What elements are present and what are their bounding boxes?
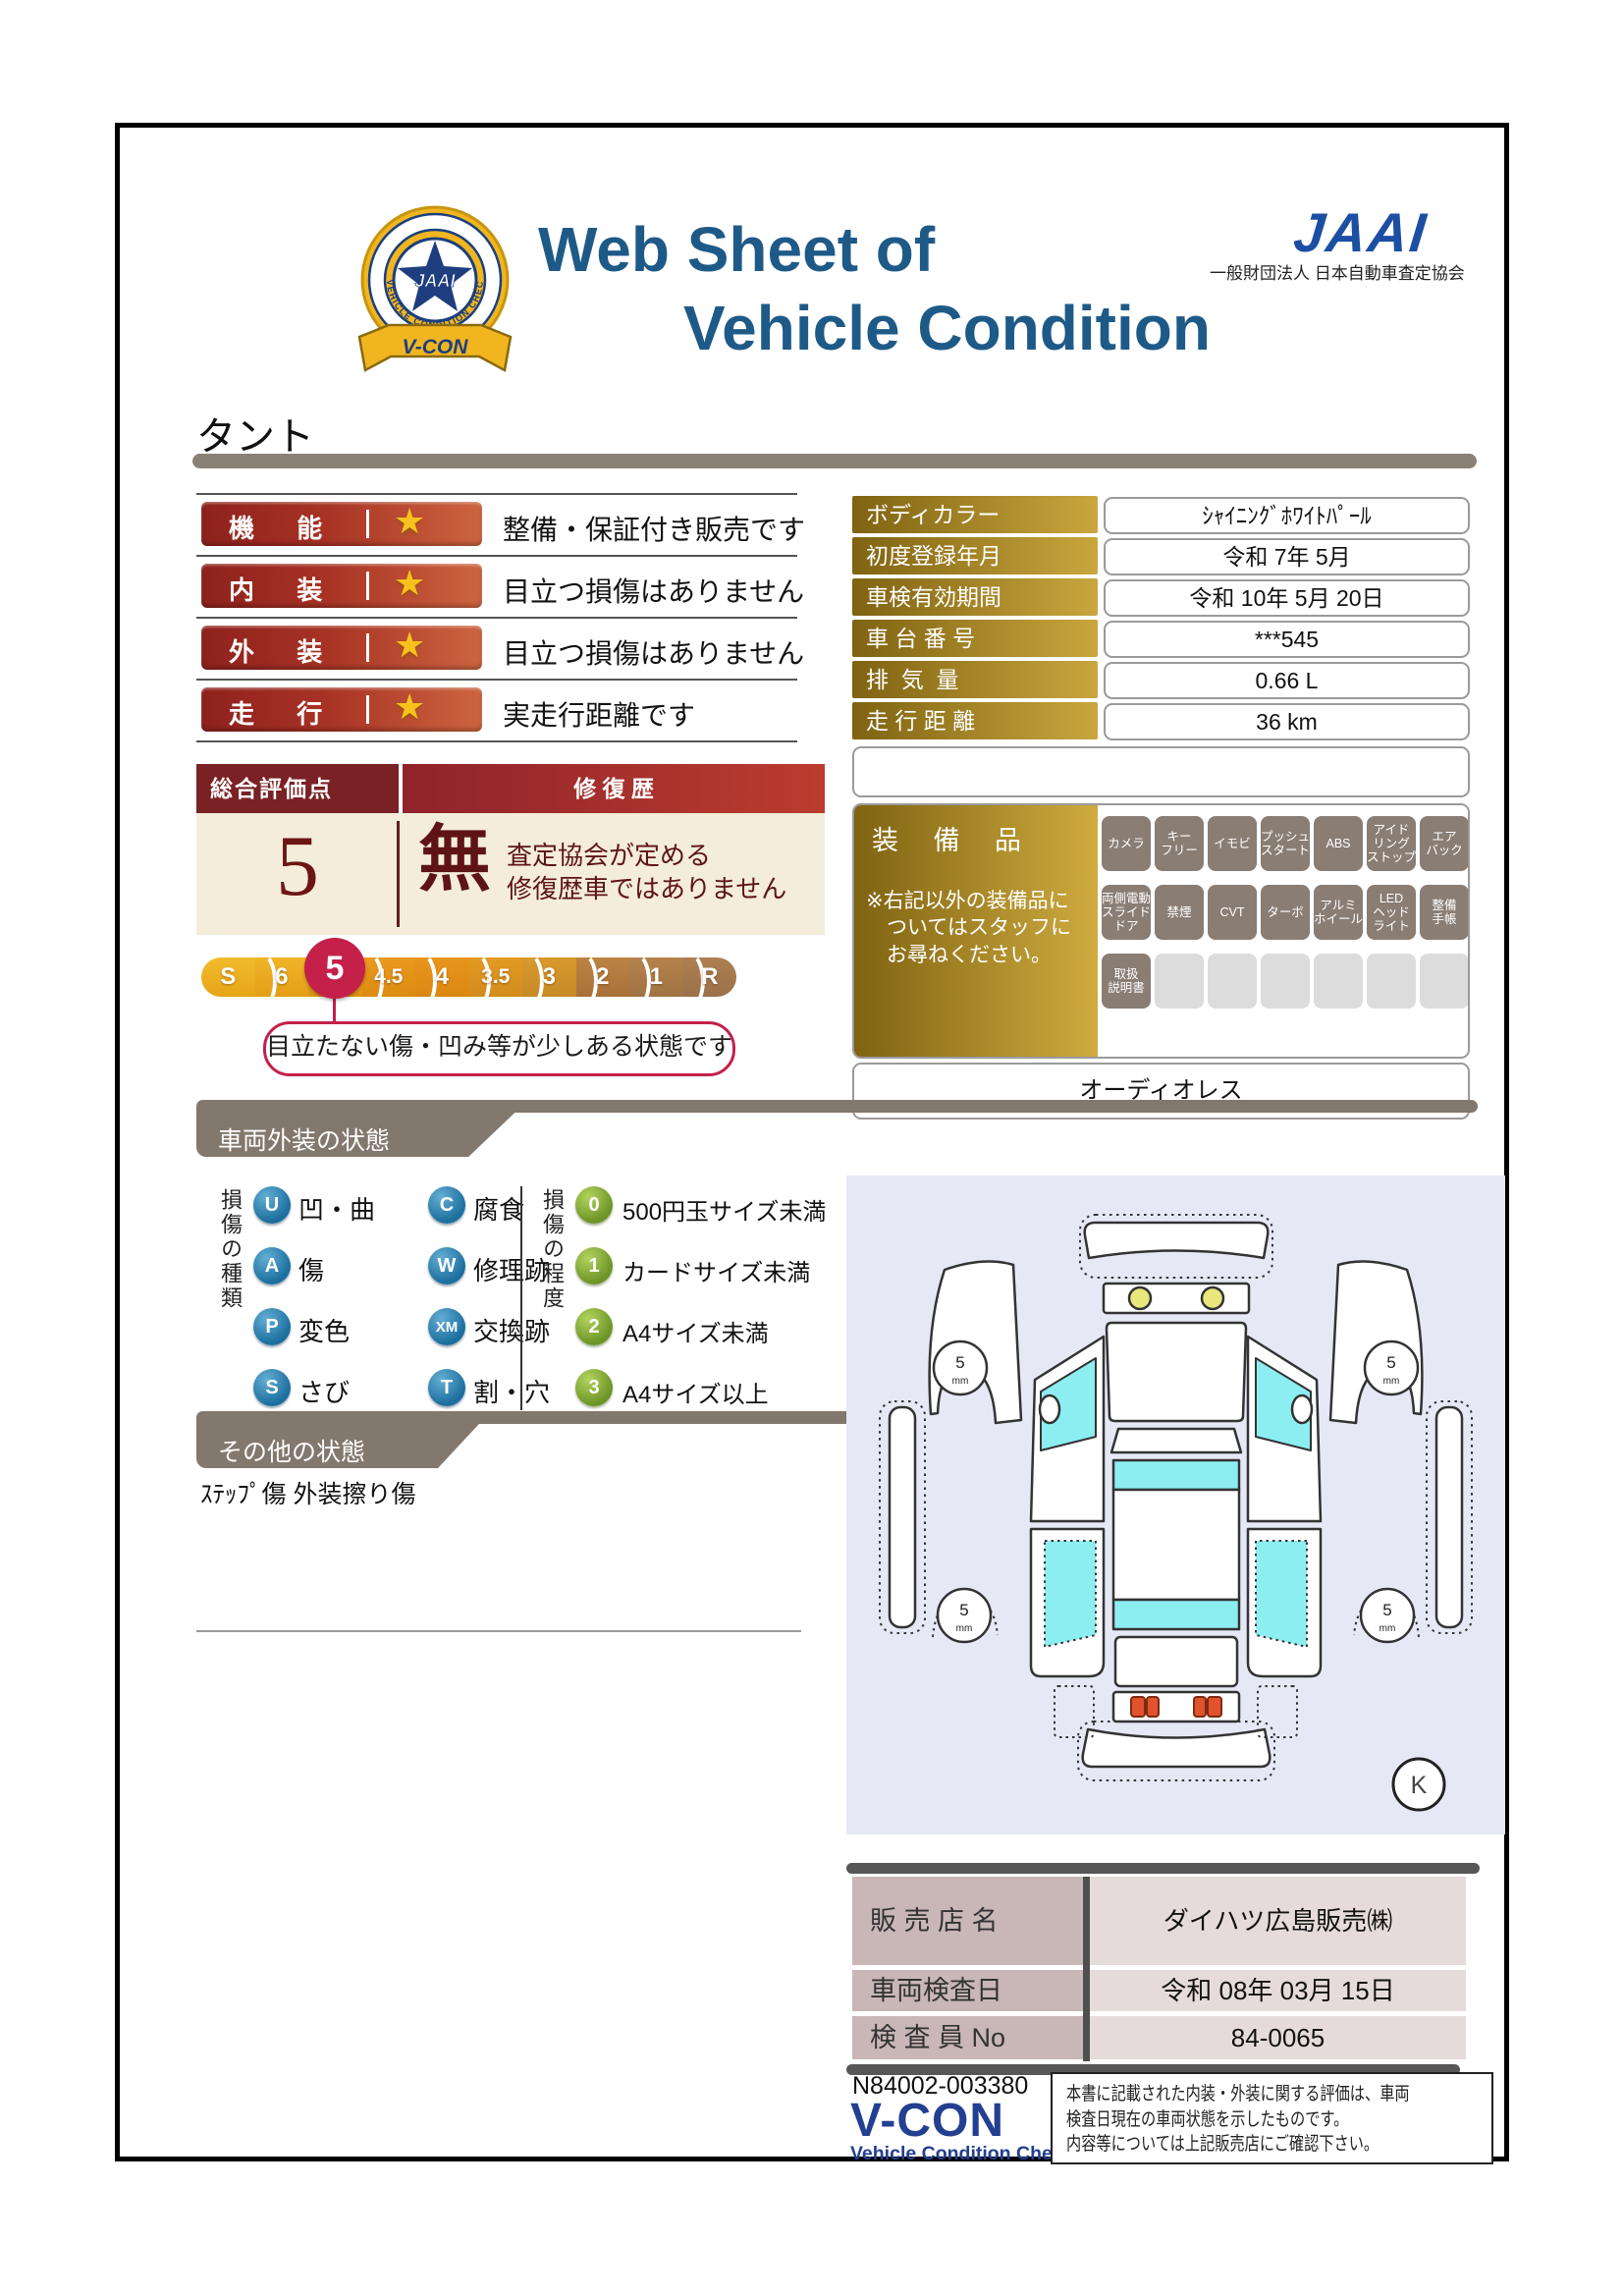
dealer-table-top-bar [846,1863,1480,1874]
damage-type-text: 交換跡 [473,1312,550,1348]
equipment-badge: プッシュ スタート [1261,816,1310,871]
equipment-gold-panel: 装 備 品 ※右記以外の装備品に ついてはスタッフに お尋ねください。 [854,805,1098,1057]
damage-type-text: 傷 [298,1251,324,1287]
left-column-rule [196,1630,801,1632]
front-bumper [1085,1223,1269,1258]
detail-value-chassis-number: ***545 [1104,621,1470,658]
rating-divider [366,633,369,662]
hood [1107,1323,1246,1421]
rating-separator [196,740,797,742]
overall-score-body: 5 無 査定協会が定める 修復歴車ではありません [196,813,825,935]
dealer-value-inspection-date: 令和 08年 03月 15日 [1090,1970,1466,2011]
svg-text:5: 5 [1386,1353,1395,1372]
dealer-value-shop: ダイハツ広島販売㈱ [1090,1877,1466,1965]
rating-divider [366,695,369,724]
car-left-side-parts [880,1261,1104,1737]
headlight-panel [1104,1284,1249,1313]
damage-type-text: さび [298,1373,350,1409]
disclaimer-box: 本書に記載された内装・外装に関する評価は、車両 検査日現在の車両状態を示したもの… [1051,2072,1493,2164]
rating-row-exterior: 外 装 ★ [201,626,482,670]
equipment-badge: キー フリー [1155,816,1204,871]
front-fender [930,1261,1021,1423]
rating-label: 走 行 [229,694,340,731]
equipment-badge: カメラ [1102,816,1151,871]
jaai-logo: JAAI [1291,200,1431,264]
scale-seg-R: R [683,957,737,997]
equipment-title: 装 備 品 [872,819,1035,857]
tire-front-left: 5 mm [934,1341,987,1394]
dealer-label-inspection-date: 車両検査日 [852,1970,1083,2011]
damage-type-icon-W: W [428,1247,465,1285]
detail-label-mileage: 走 行 距 離 [852,702,1098,739]
rating-desc: 実走行距離です [503,694,695,734]
svg-text:K: K [1411,1772,1428,1799]
star-icon: ★ [394,501,425,542]
equipment-badge: エア バック [1420,816,1469,871]
detail-label-chassis-number: 車 台 番 号 [852,620,1098,657]
exterior-section-title: 車両外装の状態 [218,1121,390,1157]
star-icon: ★ [394,563,425,604]
windshield [1111,1429,1241,1452]
legend-divider [520,1186,522,1410]
overall-body-divider [397,821,400,927]
selected-score-pointer [333,998,336,1023]
detail-value-displacement: 0.66 L [1104,662,1470,699]
damage-type-text: 割・穴 [473,1373,550,1409]
equipment-badge-empty [1208,954,1257,1009]
vcon-emblem-icon: VEHICLE CONDITION CHECK SYSTEM JAAI V-CO… [342,199,528,391]
rating-divider [366,572,369,600]
tire-rear-right: 5 mm [1361,1589,1414,1642]
repair-history-header: 修 復 歴 [403,764,825,813]
equipment-badge: 両側電動 スライド ドア [1102,885,1151,940]
damage-type-icon-C: C [428,1186,465,1224]
sheet-title-line2: Vehicle Condition [683,289,1211,367]
damage-degree-label: 損傷の程度 [536,1188,568,1311]
car-diagram-panel: 5 mm 5 mm 5 mm 5 mm K [846,1175,1505,1834]
other-condition-note: ｽﾃｯﾌﾟ傷 外装擦り傷 [200,1475,415,1510]
selected-score-marker: 5 [304,938,365,999]
roof-front-glass [1113,1460,1239,1490]
rating-label: 機 能 [229,509,340,545]
overall-score-header: 総合評価点 [196,764,399,813]
repair-history-header-label: 修 復 歴 [403,764,825,813]
repair-history-mark: 無 [418,821,491,901]
dealer-label-shop: 販 売 店 名 [852,1877,1083,1965]
equipment-note: ※右記以外の装備品に ついてはスタッフに お尋ねください。 [866,888,1071,968]
rating-divider [366,510,369,538]
equipment-badge: ABS [1314,816,1363,871]
svg-text:mm: mm [1380,1623,1396,1634]
overall-score-header-label: 総合評価点 [196,764,399,813]
equipment-badge-empty [1314,954,1363,1009]
damage-type-icon-S: S [253,1369,291,1406]
equipment-badge: ターボ [1261,885,1310,940]
sheet-title: Web Sheet of Vehicle Condition [538,210,1211,367]
equipment-badge: 整備 手帳 [1420,885,1469,940]
roof [1113,1490,1239,1600]
detail-value-first-registration: 令和 7年 5月 [1104,538,1470,575]
damage-type-text: 凹・曲 [298,1190,375,1227]
star-icon: ★ [394,686,425,728]
other-section-title: その他の状態 [218,1433,365,1468]
damage-type-icon-U: U [253,1186,291,1224]
detail-value-mileage: 36 km [1104,703,1470,740]
dealer-label-inspector-no: 検 査 員 No [852,2016,1083,2059]
exterior-section-banner: 車両外装の状態 [196,1100,1478,1157]
rating-row-function: 機 能 ★ [201,502,482,546]
rear-bumper [1083,1729,1271,1767]
badge-ribbon-text: V-CON [403,336,469,358]
car-exterior-diagram: 5 mm 5 mm 5 mm 5 mm K [846,1175,1505,1834]
equipment-badge-empty [1420,954,1469,1009]
headlight-left-icon [1129,1287,1151,1309]
car-center-parts [1078,1215,1274,1780]
rating-separator [196,679,797,681]
equipment-badge: 取扱 説明書 [1102,954,1151,1009]
svg-text:mm: mm [952,1376,969,1387]
rating-desc: 目立つ損傷はありません [503,571,804,610]
rating-desc: 目立つ損傷はありません [503,632,804,672]
car-right-side-parts [1248,1261,1472,1737]
detail-label-bodycolor: ボディカラー [852,496,1098,533]
damage-type-icon-T: T [428,1369,465,1406]
rating-separator [196,493,797,495]
damage-type-icon-A: A [253,1247,291,1285]
equipment-badge-empty [1155,954,1204,1009]
header-divider [192,454,1477,468]
rating-label: 外 装 [229,632,340,669]
svg-text:mm: mm [1383,1376,1400,1387]
detail-value-bodycolor: ｼｬｲﾆﾝｸﾞﾎﾜｲﾄﾊﾟｰﾙ [1104,497,1470,534]
overall-score-value: 5 [196,817,399,916]
tire-rear-left: 5 mm [938,1589,991,1642]
rating-row-interior: 内 装 ★ [201,564,482,608]
headlight-right-icon [1202,1287,1223,1309]
detail-label-displacement: 排 気 量 [852,661,1098,698]
star-icon: ★ [394,625,425,666]
rating-separator [196,555,797,557]
equipment-panel: 装 備 品 ※右記以外の装備品に ついてはスタッフに お尋ねください。 カメラ … [852,803,1470,1059]
key-marker: K [1393,1759,1444,1810]
svg-text:5: 5 [955,1353,964,1372]
equipment-badges: カメラ キー フリー イモビ プッシュ スタート ABS アイド リング ストッ… [1102,816,1469,1009]
equipment-badge-empty [1261,954,1310,1009]
sheet-title-line1: Web Sheet of [538,210,1211,289]
roof-rear-glass [1113,1600,1239,1629]
badge-center-text: JAAI [414,271,456,291]
damage-degree-icon-3: 3 [575,1369,613,1406]
rating-row-mileage: 走 行 ★ [201,687,482,732]
rating-label: 内 装 [229,571,340,607]
tailgate [1115,1637,1237,1686]
damage-type-text: 変色 [298,1312,350,1348]
repair-history-desc: 査定協会が定める 修復歴車ではありません [507,839,786,905]
dealer-table-divider [1083,1877,1090,2061]
damage-degree-icon-1: 1 [575,1247,613,1285]
damage-degree-text: A4サイズ以上 [622,1375,769,1409]
equipment-badge: 禁煙 [1155,885,1204,940]
damage-type-text: 腐食 [473,1190,524,1227]
damage-degree-icon-2: 2 [575,1308,613,1345]
dealer-value-inspector-no: 84-0065 [1090,2016,1466,2059]
detail-value-inspection-valid: 令和 10年 5月 20日 [1104,579,1470,617]
jaai-organization: 一般財団法人 日本自動車査定協会 [1210,259,1465,284]
equipment-badge: アイド リング ストップ [1367,816,1416,871]
tire-front-right: 5 mm [1365,1341,1418,1394]
side-sill [890,1407,915,1627]
equipment-badge: LED ヘッド ライト [1367,885,1416,940]
rear-door-window [1045,1541,1096,1647]
rating-desc: 整備・保証付き販売です [503,509,805,548]
equipment-badge: CVT [1208,885,1257,940]
damage-degree-icon-0: 0 [575,1186,613,1224]
equipment-badge: アルミ ホイール [1314,885,1363,940]
svg-text:mm: mm [956,1623,973,1634]
detail-label-inspection-valid: 車検有効期間 [852,578,1098,616]
damage-type-label: 損傷の種類 [214,1188,245,1311]
vehicle-condition-sheet: VEHICLE CONDITION CHECK SYSTEM JAAI V-CO… [0,0,1623,2296]
detail-label-first-registration: 初度登録年月 [852,537,1098,574]
door-mirror [1040,1395,1059,1423]
damage-type-icon-XM: XM [428,1308,465,1345]
detail-empty-box [852,746,1470,797]
vcon-footer-logo: V-CON [850,2094,1004,2148]
score-callout: 目立たない傷・凹み等が少しある状態です [263,1021,735,1076]
damage-type-icon-P: P [253,1308,291,1345]
svg-text:5: 5 [1382,1601,1391,1619]
disclaimer-text: 本書に記載された内装・外装に関する評価は、車両 検査日現在の車両状態を示したもの… [1066,2082,1494,2158]
equipment-badge: イモビ [1208,816,1257,871]
equipment-badge-empty [1367,954,1416,1009]
rating-separator [196,617,797,619]
score-scale-bar: S 6 4.5 4 3.5 3 2 1 R [201,957,736,997]
damage-degree-text: A4サイズ未満 [622,1314,769,1348]
damage-degree-text: カードサイズ未満 [622,1253,810,1287]
damage-degree-text: 500円玉サイズ未満 [622,1192,826,1227]
svg-text:5: 5 [959,1601,968,1619]
